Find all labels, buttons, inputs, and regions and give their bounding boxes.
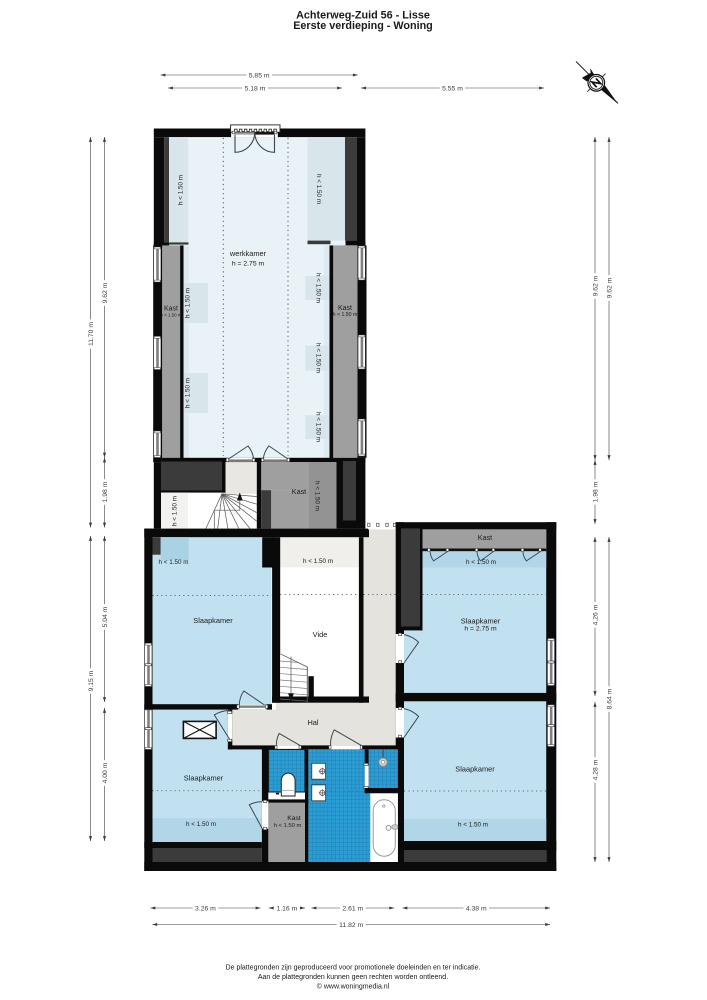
svg-text:4.26 m: 4.26 m xyxy=(592,604,599,625)
svg-text:5.85 m: 5.85 m xyxy=(249,72,270,79)
svg-text:Hal: Hal xyxy=(307,718,318,727)
svg-text:Vide: Vide xyxy=(313,630,328,639)
svg-text:1.98 m: 1.98 m xyxy=(102,481,109,502)
svg-text:1.98 m: 1.98 m xyxy=(592,481,599,502)
svg-text:Eerste verdieping - Woning: Eerste verdieping - Woning xyxy=(293,20,433,32)
svg-text:h < 1.50 m: h < 1.50 m xyxy=(333,312,358,318)
svg-text:9.62 m: 9.62 m xyxy=(606,277,613,298)
svg-text:9.15 m: 9.15 m xyxy=(88,670,95,691)
svg-text:h < 1.50 m: h < 1.50 m xyxy=(314,481,321,511)
svg-text:h < 1.50 m: h < 1.50 m xyxy=(172,496,179,526)
svg-text:5.55 m: 5.55 m xyxy=(442,85,463,92)
svg-text:h < 1.50 m: h < 1.50 m xyxy=(315,343,322,373)
svg-text:werkkamer: werkkamer xyxy=(229,249,267,258)
svg-text:Kast: Kast xyxy=(478,533,492,542)
svg-text:h < 1.50 m: h < 1.50 m xyxy=(161,313,182,318)
svg-text:h < 1.50 m: h < 1.50 m xyxy=(274,823,302,829)
svg-text:Slaapkamer: Slaapkamer xyxy=(455,765,495,774)
svg-text:h < 1.50 m: h < 1.50 m xyxy=(185,378,192,408)
svg-text:Slaapkamer: Slaapkamer xyxy=(184,774,224,783)
svg-text:h < 1.50 m: h < 1.50 m xyxy=(466,559,496,566)
svg-text:11.70 m: 11.70 m xyxy=(88,322,95,346)
svg-text:h = 2.75 m: h = 2.75 m xyxy=(464,626,497,633)
svg-text:Kast: Kast xyxy=(292,487,306,496)
svg-text:2.61 m: 2.61 m xyxy=(342,905,363,912)
svg-text:h < 1.50 m: h < 1.50 m xyxy=(315,174,322,204)
svg-text:1.16 m: 1.16 m xyxy=(276,905,297,912)
svg-text:5.04 m: 5.04 m xyxy=(102,606,109,627)
svg-text:Kast: Kast xyxy=(164,306,178,313)
svg-text:h < 1.50 m: h < 1.50 m xyxy=(458,821,488,828)
svg-text:Kast: Kast xyxy=(287,815,301,822)
svg-text:11.82 m: 11.82 m xyxy=(339,922,363,929)
svg-text:h < 1.50 m: h < 1.50 m xyxy=(303,558,333,565)
svg-text:Aan de plattegronden kunnen ge: Aan de plattegronden kunnen geen rechten… xyxy=(258,974,448,981)
svg-text:h < 1.50 m: h < 1.50 m xyxy=(315,412,322,442)
svg-text:8.64 m: 8.64 m xyxy=(606,688,613,709)
svg-text:h < 1.50 m: h < 1.50 m xyxy=(186,821,216,828)
svg-text:h < 1.50 m: h < 1.50 m xyxy=(315,273,322,303)
svg-text:4.38 m: 4.38 m xyxy=(466,905,487,912)
svg-text:4.00 m: 4.00 m xyxy=(102,762,109,783)
svg-text:5.18 m: 5.18 m xyxy=(245,85,266,92)
svg-text:h = 2.75 m: h = 2.75 m xyxy=(232,261,265,268)
svg-text:Slaapkamer: Slaapkamer xyxy=(461,616,501,625)
svg-text:4.28 m: 4.28 m xyxy=(592,759,599,780)
svg-text:h < 1.50 m: h < 1.50 m xyxy=(159,559,189,566)
svg-text:9.62 m: 9.62 m xyxy=(592,275,599,296)
svg-text:© www.woningmedia.nl: © www.woningmedia.nl xyxy=(317,983,390,991)
svg-text:h < 1.50 m: h < 1.50 m xyxy=(185,288,192,318)
svg-text:9.62 m: 9.62 m xyxy=(102,282,109,303)
svg-text:h < 1.50 m: h < 1.50 m xyxy=(178,175,185,205)
svg-text:De plattegronden zijn geproduc: De plattegronden zijn geproduceerd voor … xyxy=(226,965,481,972)
svg-text:3.26 m: 3.26 m xyxy=(195,905,216,912)
svg-text:Slaapkamer: Slaapkamer xyxy=(193,616,233,625)
